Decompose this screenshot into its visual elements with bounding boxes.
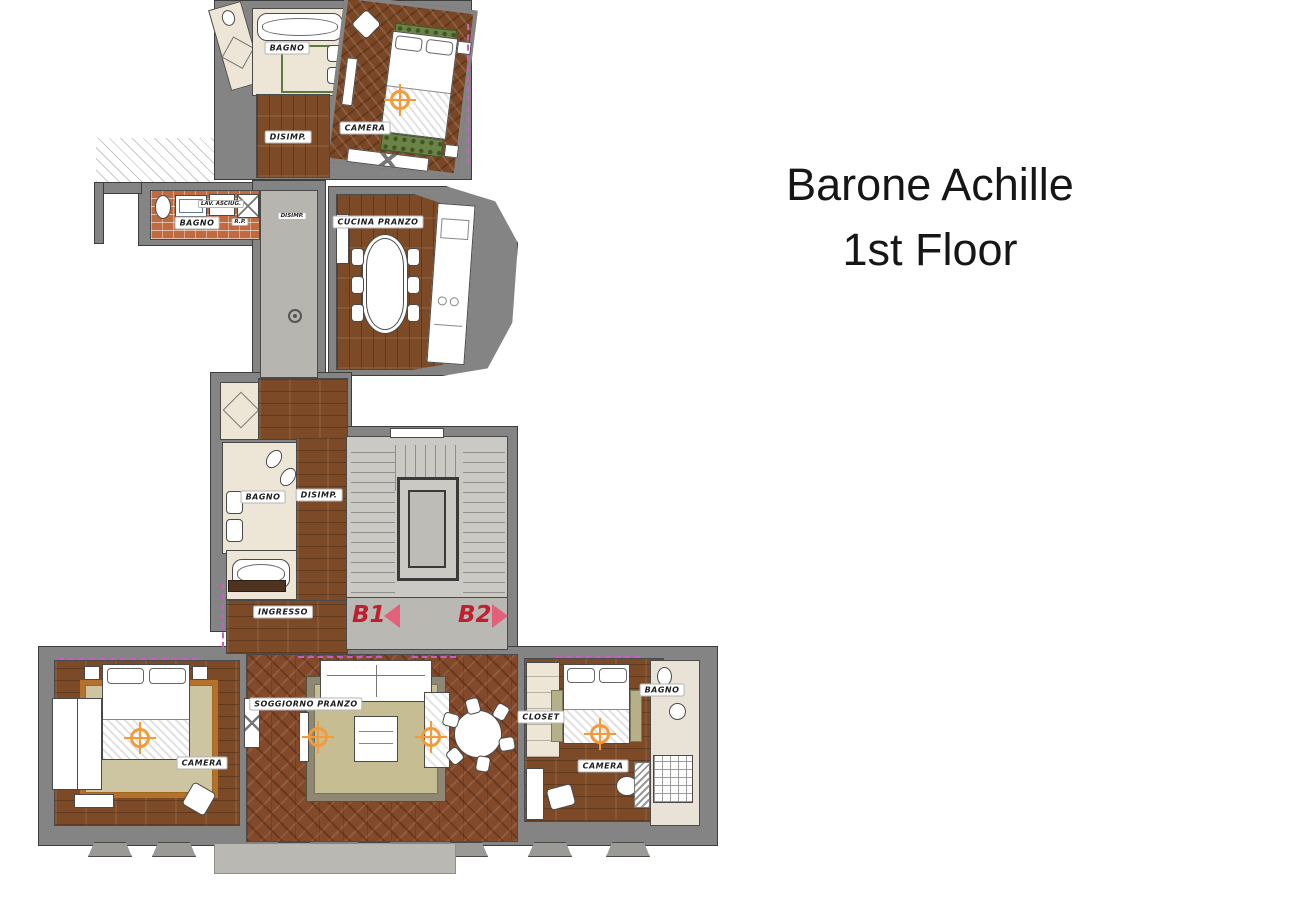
chair-icon <box>475 755 492 773</box>
armchair-icon <box>351 9 382 40</box>
bathtub-icon <box>257 13 343 41</box>
nightstand-icon <box>456 41 471 56</box>
label-disimp-mid: DISIMP. <box>296 489 343 502</box>
chair-icon <box>351 276 364 294</box>
burner-icon <box>437 296 447 306</box>
pillow-icon <box>394 35 423 52</box>
stair-b1-label: B1 <box>352 602 386 628</box>
wardrobe-icon <box>52 698 102 790</box>
room-shower-mid <box>220 382 262 440</box>
pillow-icon <box>567 668 595 683</box>
stairwell <box>346 436 508 598</box>
toilet-icon <box>220 9 237 28</box>
shower-diamond-icon <box>222 36 255 69</box>
chair-icon <box>351 248 364 266</box>
bedside-unit-icon <box>630 690 642 742</box>
table-line <box>359 743 393 744</box>
chair-icon <box>407 304 420 322</box>
label-disimp-landing: DISIMP. <box>278 212 307 220</box>
pillow-icon <box>107 668 144 684</box>
target-marker-icon <box>130 728 150 748</box>
chair-icon <box>498 736 516 753</box>
plan-title-line1: Barone Achille <box>700 152 1160 217</box>
pillow-icon <box>599 668 627 683</box>
nightstand-icon <box>444 144 459 159</box>
window-marker <box>58 658 198 660</box>
window-bay <box>88 842 132 857</box>
label-ingresso: INGRESSO <box>253 606 313 619</box>
label-lav-asciug: LAV. ASCIUG. <box>198 200 244 208</box>
target-marker-icon <box>390 90 410 110</box>
dining-table-icon <box>366 238 404 330</box>
kitchen-sink-icon <box>440 218 469 240</box>
window-bay <box>606 842 650 857</box>
label-bagno-mid: BAGNO <box>241 491 286 504</box>
sofa-seam <box>327 675 425 676</box>
label-cucina: CUCINA PRANZO <box>333 216 424 229</box>
wardrobe-dark-icon <box>228 580 286 592</box>
b2-arrow-icon <box>492 604 508 628</box>
floor-plan-canvas: Barone Achille 1st Floor <box>0 0 1300 900</box>
chair-icon <box>407 248 420 266</box>
walls-laundry-left <box>94 182 104 244</box>
wardrobe-divider <box>77 699 78 789</box>
nightstand-icon <box>192 666 208 680</box>
coffee-table-icon <box>354 716 398 762</box>
bed-icon <box>380 31 458 140</box>
counter-line <box>434 324 462 327</box>
sofa-icon <box>320 660 432 702</box>
target-marker-icon <box>590 724 610 744</box>
shower-icon <box>653 755 693 803</box>
bench-icon <box>526 768 544 820</box>
shower-diamond-icon <box>223 392 260 429</box>
label-disimp-top: DISIMP. <box>265 131 312 144</box>
sink-icon <box>226 519 243 542</box>
floor-drain-icon <box>288 309 302 323</box>
towel-rack-icon <box>634 762 650 808</box>
dresser-icon <box>341 57 358 106</box>
window-bay <box>528 842 572 857</box>
stair-flight-left <box>351 445 395 593</box>
stair-flight-right <box>463 445 505 593</box>
window-marker <box>467 24 469 164</box>
b1-arrow-icon <box>384 604 400 628</box>
room-disimp-mid <box>296 438 348 620</box>
target-marker-icon <box>421 727 441 747</box>
label-bagno-top: BAGNO <box>265 42 310 55</box>
label-camera-left: CAMERA <box>177 757 228 770</box>
window-marker <box>222 584 224 648</box>
chair-icon <box>407 276 420 294</box>
chair-icon <box>351 304 364 322</box>
window-marker <box>412 656 456 658</box>
room-disimp-mid-top <box>258 378 348 440</box>
stair-b2-label: B2 <box>458 602 492 628</box>
pillow-icon <box>425 39 454 56</box>
washbasin-icon <box>155 195 171 219</box>
plan-title-line2: 1st Floor <box>700 217 1160 282</box>
neighbor-hatch-area <box>96 138 214 182</box>
label-closet: CLOSET <box>517 711 564 724</box>
label-soggiorno: SOGGIORNO PRANZO <box>249 698 362 711</box>
plan-title: Barone Achille 1st Floor <box>700 152 1160 283</box>
nightstand-icon <box>84 666 100 680</box>
terrace <box>214 844 456 874</box>
elevator-car-icon <box>408 490 446 568</box>
radiator-icon <box>74 794 114 808</box>
label-bagno-laundry: BAGNO <box>175 217 220 230</box>
window-marker <box>556 656 640 658</box>
room-tub-mid <box>226 550 300 600</box>
toilet-icon <box>263 447 286 471</box>
label-camera-right: CAMERA <box>578 760 629 773</box>
window-marker <box>298 656 382 658</box>
sofa-seam <box>376 665 377 697</box>
window-bay <box>152 842 196 857</box>
target-marker-icon <box>308 727 328 747</box>
sink-icon <box>669 703 686 720</box>
label-bagno-right: BAGNO <box>640 684 685 697</box>
label-rp: R.P. <box>231 218 248 226</box>
label-camera-top: CAMERA <box>340 122 391 135</box>
stair-window <box>390 428 444 438</box>
room-bagno-laundry <box>150 190 260 240</box>
elevator-shaft <box>397 477 459 581</box>
pillow-icon <box>149 668 186 684</box>
table-line <box>359 731 393 732</box>
burner-icon <box>449 297 459 307</box>
